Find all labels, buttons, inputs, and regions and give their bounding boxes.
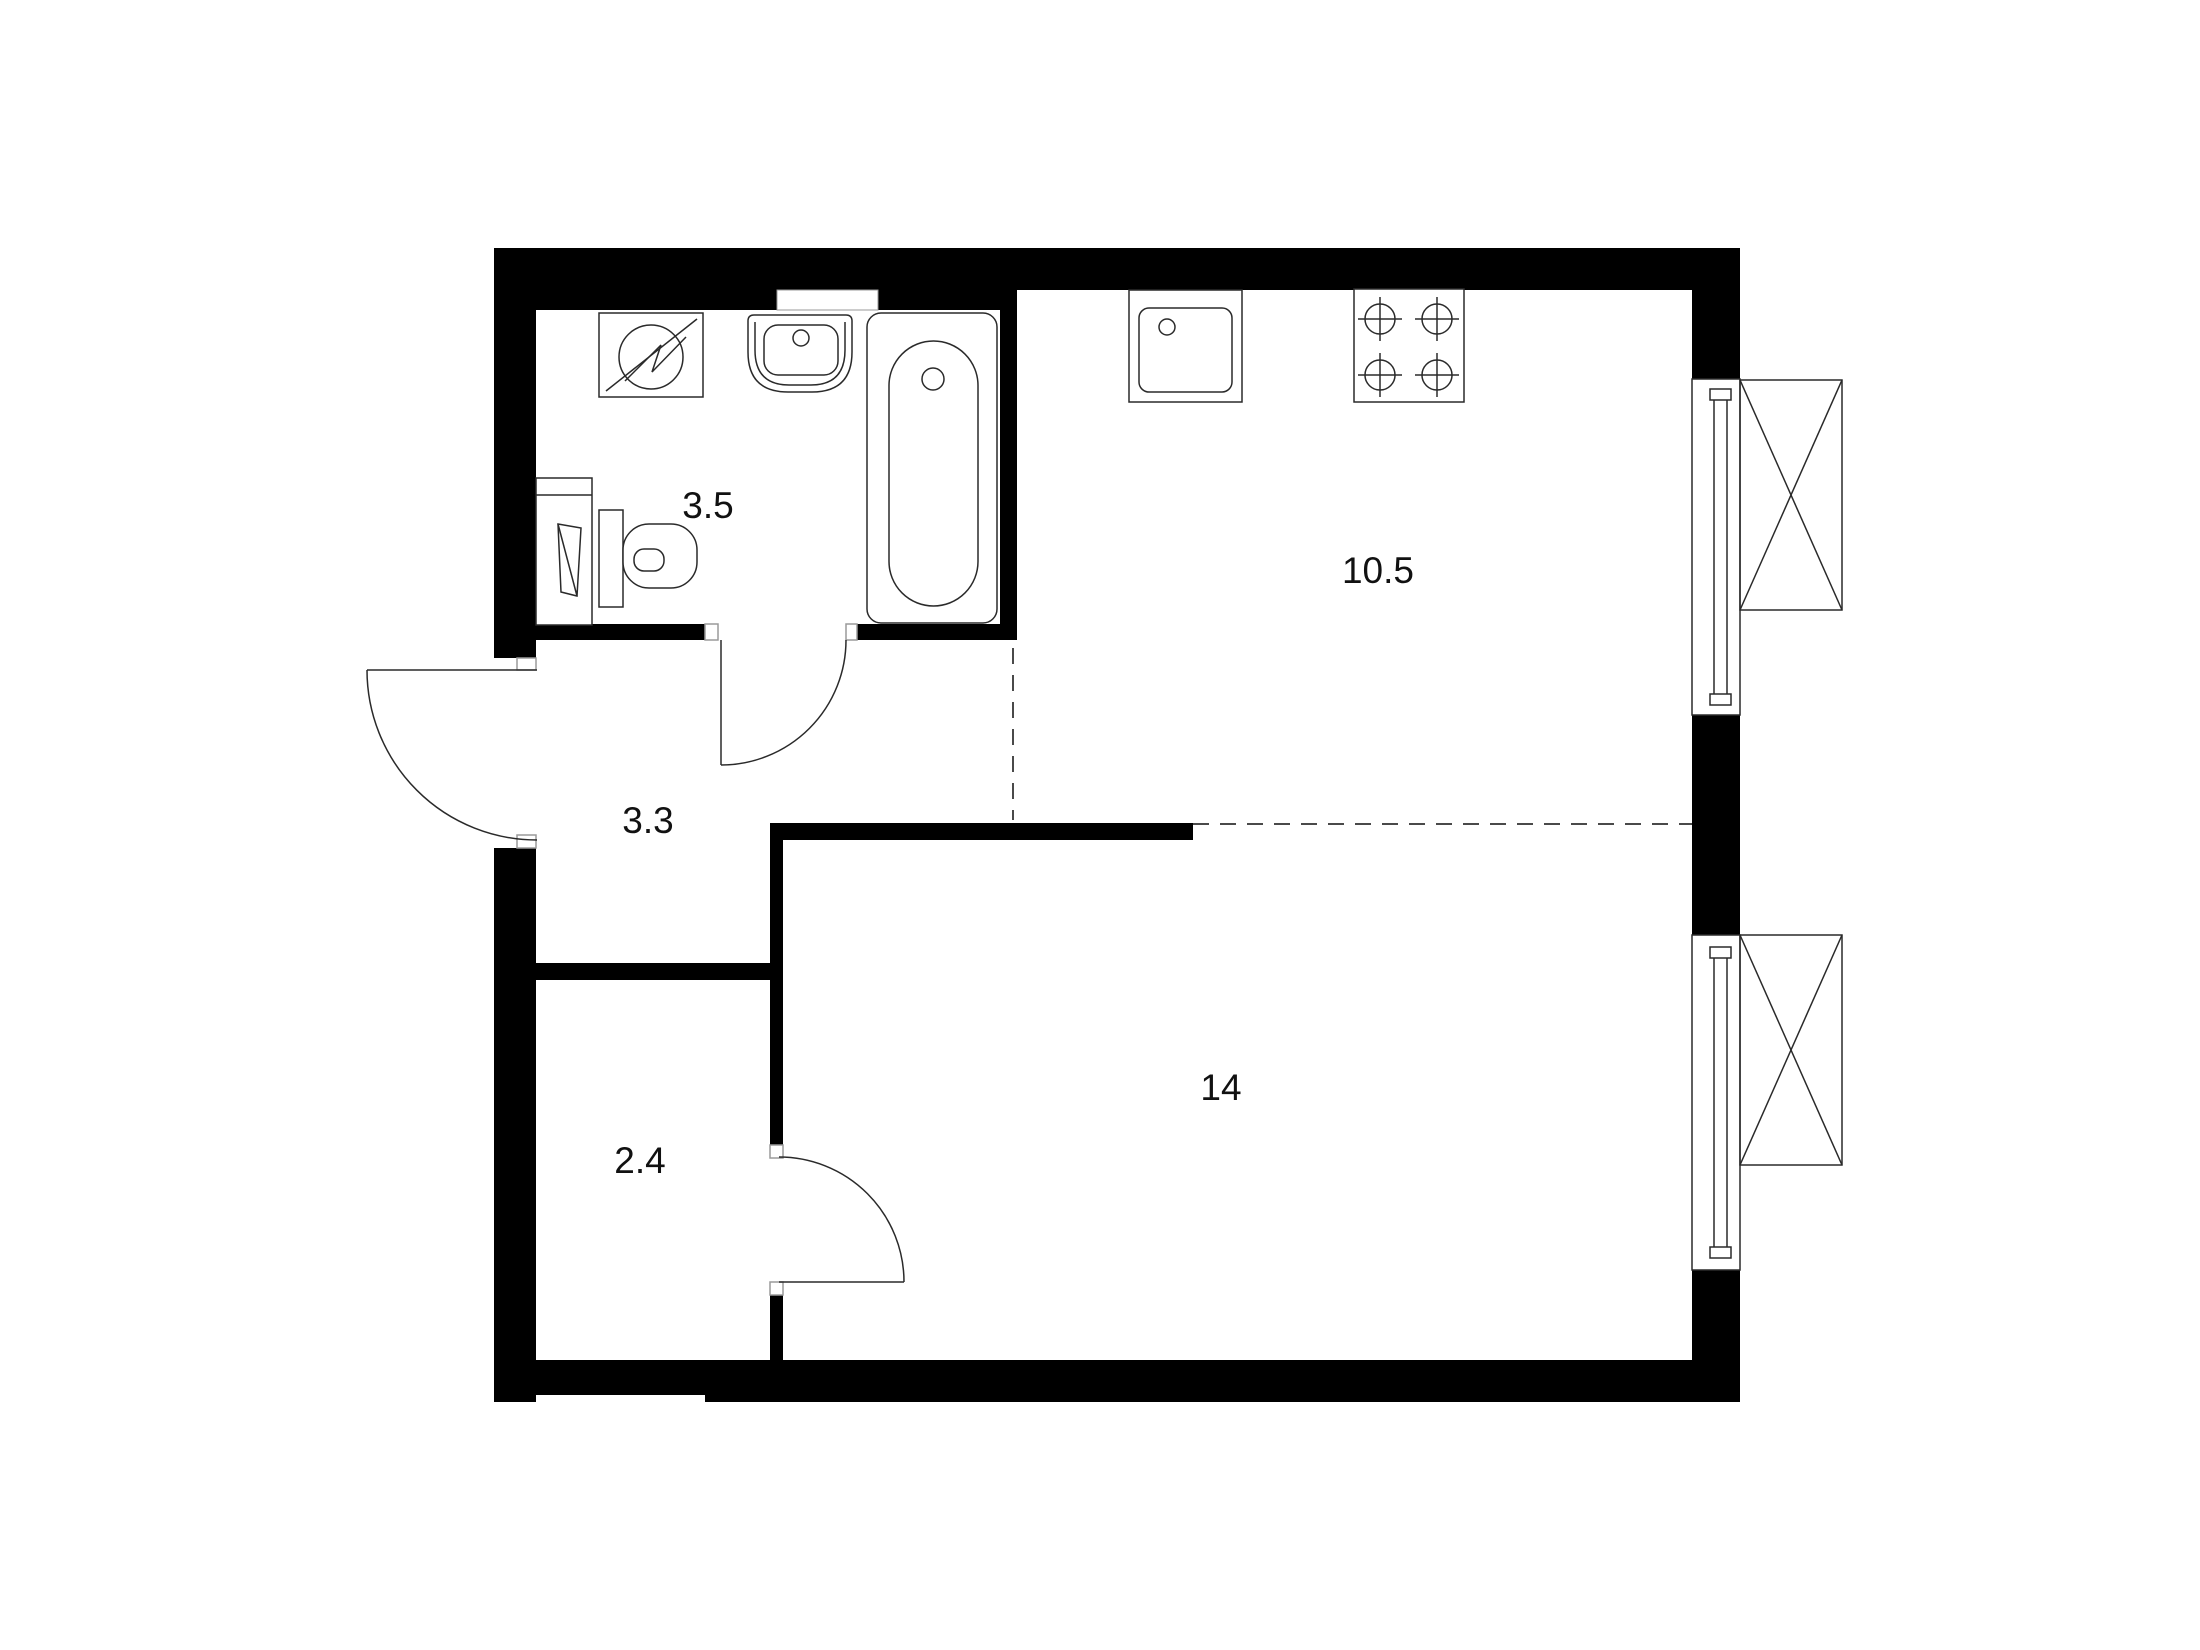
wall-left-upper [494,248,536,658]
wall-bottom-main [705,1360,1740,1402]
wall-closet-partition-lower [770,1295,783,1360]
ac-unit-icon [1740,935,1842,1165]
kitchen-sink-icon [1129,290,1242,402]
wall-top [494,248,1740,290]
window-icon [1692,379,1740,715]
ac-unit-icon [1740,380,1842,610]
wall-bathroom-bottom-right [857,624,1017,640]
hallway-area-label: 3.3 [622,800,673,841]
closet-door door-swing-icon [779,1157,904,1282]
wall-bottom-closet [494,1360,709,1395]
wall-bathroom-lining-right [878,290,1000,310]
ac-units [1740,380,1842,1165]
closet-door-jamb-bottom [770,1282,783,1295]
wall-right-above-upper-window [1692,286,1740,379]
washing-machine-icon [599,313,703,397]
door-jambs [517,624,857,1295]
wall-closet-partition-upper [770,823,783,1145]
bathroom-fixtures [536,313,997,625]
bathroom-door-jamb-right [846,624,857,640]
stove-4-burner-icon [1354,289,1464,402]
closet-door-jamb-top [770,1145,783,1158]
wall-closet-top [536,963,770,980]
wall-right-between-windows [1692,715,1740,935]
wall-right-below-lower-window [1692,1270,1740,1402]
wall-livingroom-top [770,823,1193,840]
entrance-jamb-top [517,658,536,670]
bathroom-wall-recess [777,290,878,310]
entrance-door door-swing-icon [367,670,537,840]
floor-plan-page: 3.5 10.5 3.3 2.4 14 [0,0,2200,1650]
entrance-jamb-bottom [517,835,536,848]
bathroom-cabinet-icon [536,478,592,625]
doors [367,640,904,1282]
bathroom-sink-icon [748,315,852,392]
wall-left-lower [494,848,536,1402]
closet-area-label: 2.4 [614,1140,665,1181]
bathroom-door-jamb-left [705,624,718,640]
wall-bathroom-kitchen-partition [1000,290,1017,640]
bathroom-area-label: 3.5 [682,485,733,526]
wall-bathroom-lining-left [536,290,777,310]
floor-plan-drawing: 3.5 10.5 3.3 2.4 14 [0,0,2200,1650]
living-room-area-label: 14 [1200,1067,1241,1108]
bathroom-door door-swing-icon [721,640,846,765]
kitchen-area-label: 10.5 [1342,550,1414,591]
window-icon [1692,935,1740,1270]
kitchen-fixtures [1129,289,1464,402]
zone-boundaries [1013,648,1692,824]
wall-bathroom-bottom-left [536,624,705,640]
bathtub-icon [867,313,997,623]
